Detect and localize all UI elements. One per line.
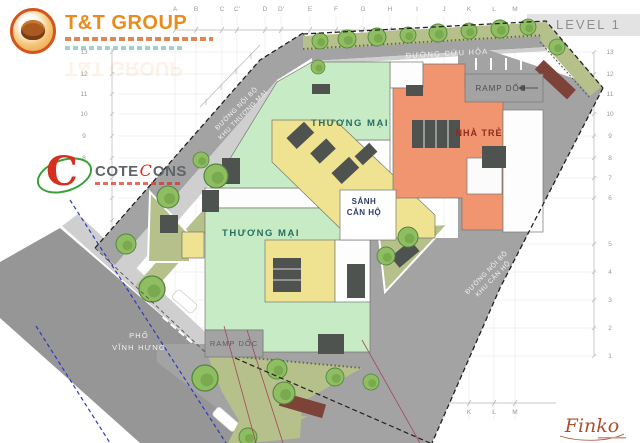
signature-block: Finko	[560, 415, 626, 440]
coteccons-c-mark: C	[46, 147, 78, 197]
grid-number: 5	[608, 241, 612, 248]
grid-number: 10	[606, 111, 614, 118]
grid-number: 12	[606, 71, 614, 78]
coteccons-tagline	[95, 182, 181, 185]
grid-number: 13	[606, 49, 614, 56]
grid-number: 7	[608, 175, 612, 182]
grid-number: 8	[608, 155, 612, 162]
label-pho-line2: VĨNH HƯNG	[112, 343, 166, 352]
grid-letter: J	[442, 6, 445, 13]
grid-letter: H	[388, 6, 393, 13]
grid-letter: K	[467, 6, 472, 13]
signature-subtext	[598, 437, 626, 439]
tt-group-logo: T&T GROUP T&T GROUP	[10, 8, 260, 79]
grid-number: 4	[608, 269, 612, 276]
area-core-yellow-small	[182, 232, 204, 258]
grid-number: 11	[81, 91, 88, 98]
coteccons-word-pre: COTE	[95, 163, 139, 180]
white-rooms	[390, 62, 423, 88]
label-pho-line1: PHỐ	[129, 330, 149, 340]
grid-letter: L	[492, 409, 496, 416]
tt-group-tagline	[65, 37, 213, 41]
level-label: LEVEL 1	[556, 17, 621, 32]
grid-number: 2	[608, 325, 612, 332]
grid-letter: D	[263, 6, 268, 13]
signature-finko: Finko	[564, 415, 619, 437]
label-nha-tre: NHÀ TRẺ	[456, 127, 503, 138]
label-sanh-line2: CĂN HỘ	[347, 208, 382, 217]
grid-letter: I	[416, 6, 418, 13]
island-structure	[160, 215, 178, 233]
grid-letter: G	[360, 6, 365, 13]
label-ramp-doc-bottom: RAMP DỐC	[210, 338, 258, 348]
white-rooms-east	[503, 110, 543, 232]
label-thuong-mai-upper: THƯƠNG MẠI	[311, 118, 389, 129]
grid-number: 3	[608, 297, 612, 304]
coteccons-word-mid: C	[140, 161, 152, 180]
grid-numbers-right: 13 12 11 10 9 8 7 6 5 4 3 2 1	[606, 49, 614, 360]
grid-number: 6	[608, 195, 612, 202]
coteccons-logo: C COTE C ONS	[34, 146, 187, 200]
tt-group-emblem-icon	[10, 8, 56, 54]
grid-number: 11	[607, 91, 614, 98]
grid-number: 10	[80, 111, 88, 118]
grid-number: 1	[608, 353, 612, 360]
grid-letter: L	[492, 6, 496, 13]
coteccons-emblem-icon: C	[34, 146, 92, 200]
grid-number: 9	[608, 133, 612, 140]
tt-group-name: T&T GROUP	[65, 13, 213, 33]
coteccons-word-post: ONS	[153, 163, 187, 180]
tt-group-subline	[65, 46, 183, 50]
grid-number: 9	[82, 133, 86, 140]
grid-letter: M	[512, 409, 517, 416]
grid-letter: E	[308, 6, 313, 13]
grid-letter: D'	[278, 6, 284, 13]
grid-letter: K	[467, 409, 472, 416]
tt-group-reflection: T&T GROUP	[65, 56, 260, 79]
grid-letter: M	[512, 6, 517, 13]
label-sanh-line1: SẢNH	[352, 197, 377, 206]
grid-letter: F	[334, 6, 338, 13]
label-thuong-mai-lower: THƯƠNG MẠI	[222, 228, 300, 239]
